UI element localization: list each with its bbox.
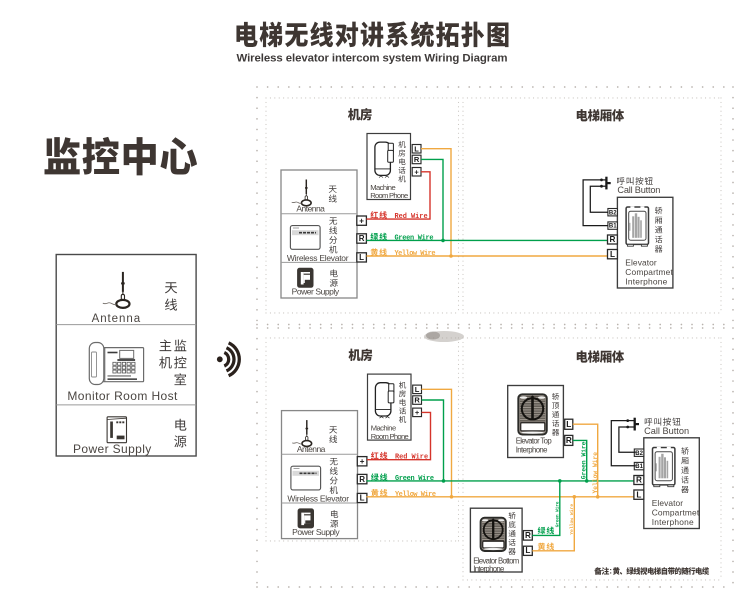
svg-text:Interphone: Interphone (516, 446, 548, 455)
svg-text:R: R (414, 155, 420, 164)
svg-text:Power Supply: Power Supply (73, 442, 151, 456)
svg-text:Green Wire: Green Wire (395, 235, 434, 243)
svg-text:+: + (359, 216, 364, 225)
svg-text:+: + (414, 167, 419, 176)
svg-text:Interphone: Interphone (473, 564, 504, 573)
svg-text:Antenna: Antenna (92, 313, 141, 325)
svg-text:Power Supply: Power Supply (292, 287, 340, 297)
svg-text:Red Wire: Red Wire (395, 213, 428, 221)
svg-text:Wireless elevator intercom sys: Wireless elevator intercom system Wiring… (237, 52, 508, 64)
svg-text:Monitor Room Host: Monitor Room Host (67, 389, 178, 403)
svg-text:Yellow Wire: Yellow Wire (569, 504, 575, 535)
svg-text:Yellow Wire: Yellow Wire (395, 250, 436, 258)
svg-text:Elevator Top: Elevator Top (516, 437, 553, 446)
svg-text:Room Phone: Room Phone (370, 191, 408, 200)
svg-text:L: L (566, 420, 571, 429)
svg-text:L: L (359, 253, 364, 262)
svg-text:Wireless Elevator: Wireless Elevator (287, 253, 349, 263)
svg-text:R: R (525, 531, 531, 540)
svg-text:Antenna: Antenna (296, 203, 325, 213)
svg-text:Green Wire: Green Wire (556, 501, 561, 527)
svg-text:Yellow Wire: Yellow Wire (592, 452, 599, 494)
svg-text:L: L (414, 144, 419, 153)
svg-text:Call Button: Call Button (617, 185, 660, 195)
svg-text:Green Wire: Green Wire (580, 441, 587, 479)
svg-text:R: R (566, 436, 572, 445)
svg-text:L: L (525, 546, 530, 555)
svg-text:Call Button: Call Button (644, 426, 689, 436)
svg-text::: : (609, 565, 612, 575)
svg-text:R: R (359, 234, 365, 243)
